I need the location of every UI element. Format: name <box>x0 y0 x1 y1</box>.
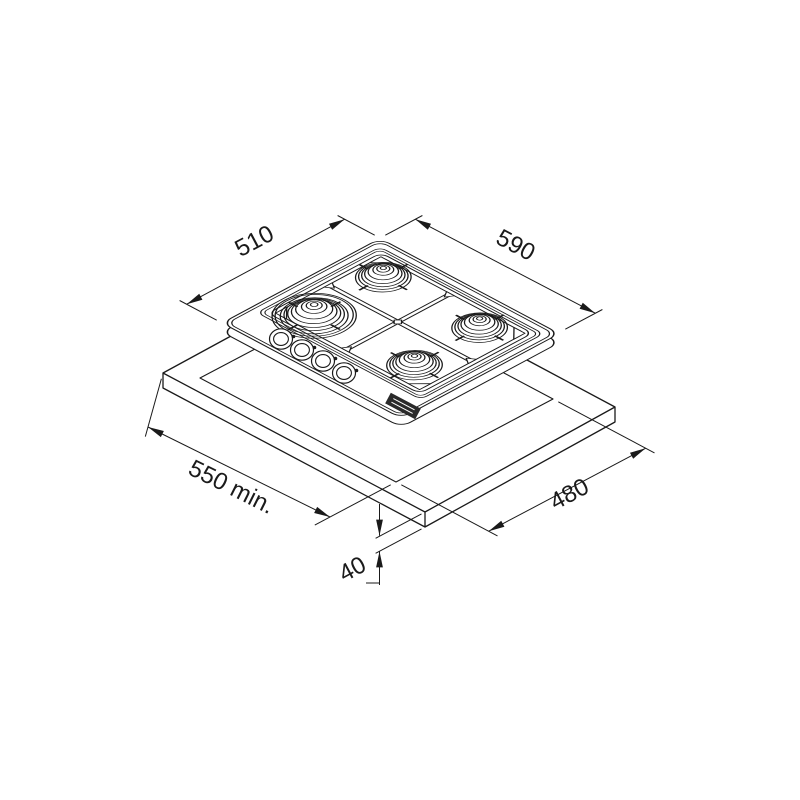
igniter-dot <box>355 369 359 373</box>
technical-drawing: 510 590 550 min. 480 40 <box>0 0 800 800</box>
igniter-dot <box>334 357 338 361</box>
igniter-dot <box>313 346 317 350</box>
igniter-dot <box>292 335 296 339</box>
